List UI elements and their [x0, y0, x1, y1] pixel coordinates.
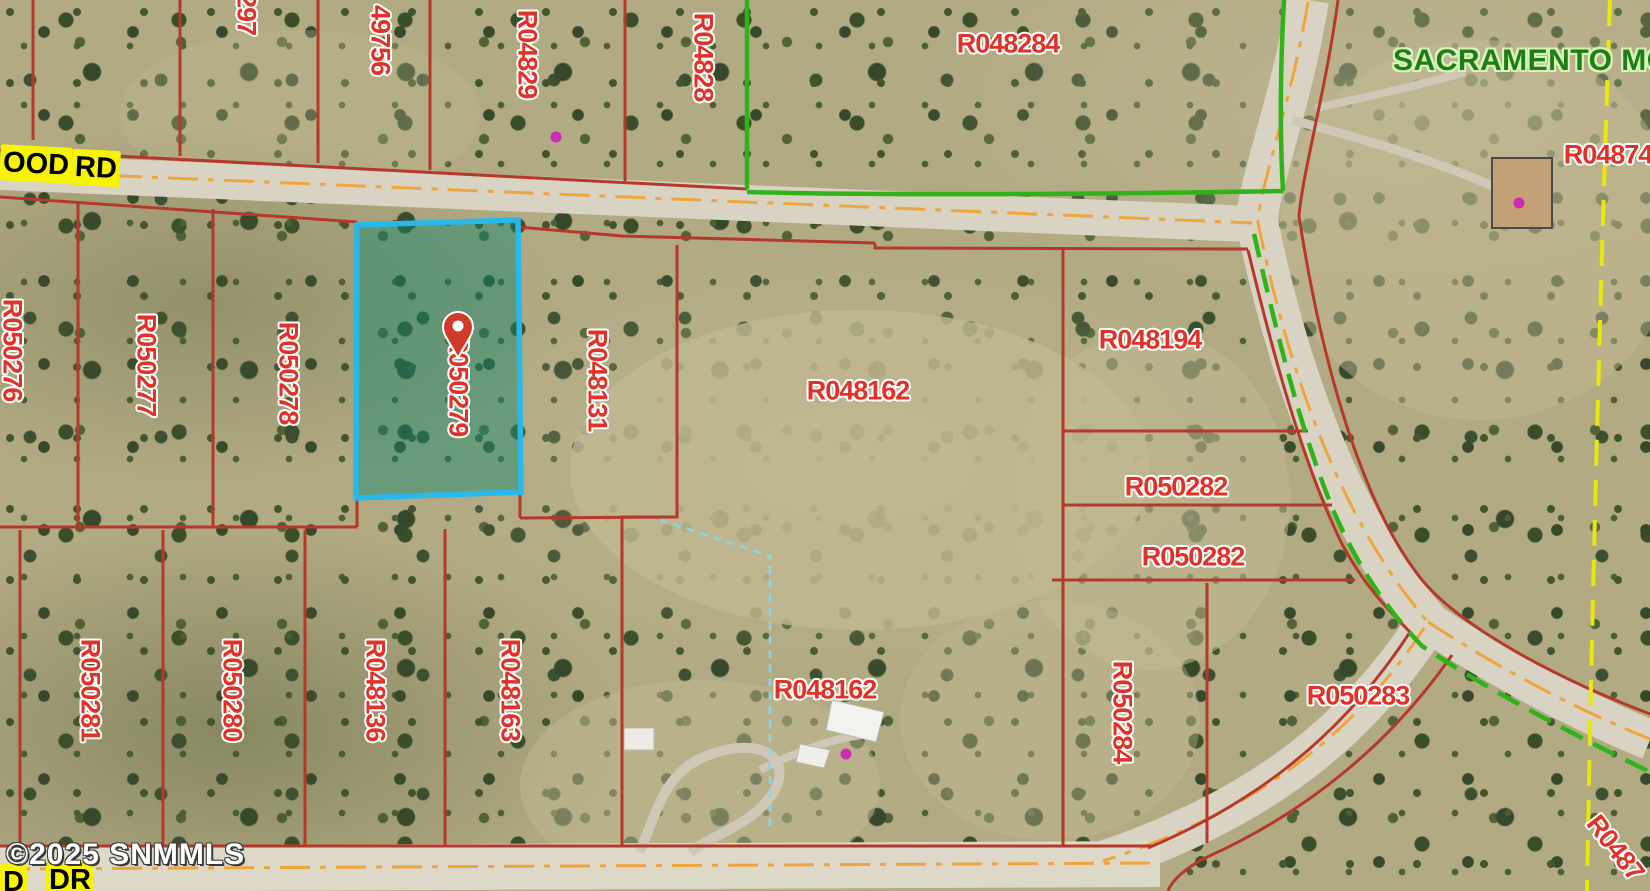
subdivision-label: SACRAMENTO MOU	[1393, 46, 1650, 76]
parcel-label: R050276	[0, 299, 26, 402]
copyright-watermark: ©2025 SNMMLS	[6, 840, 245, 870]
parcel-label: R050282	[1142, 544, 1245, 571]
map-labels: R048284 R04874 R048194 R048162 R050282 R…	[0, 0, 1650, 891]
parcel-label: R050281	[77, 639, 104, 742]
parcel-label: R048162	[807, 378, 910, 405]
parcel-label: 49756	[367, 5, 394, 75]
parcel-label: R04828	[690, 13, 717, 102]
parcel-label: 297	[233, 0, 260, 35]
road-name-label: OOD	[0, 144, 73, 184]
parcel-label: R050282	[1125, 474, 1228, 501]
parcel-label: R048162	[774, 677, 877, 704]
parcel-label: R050277	[133, 314, 160, 417]
parcel-label: R048284	[957, 31, 1060, 58]
road-name-label: RD	[71, 149, 121, 187]
parcel-map-canvas[interactable]: R048284 R04874 R048194 R048162 R050282 R…	[0, 0, 1650, 891]
parcel-label: R050280	[219, 639, 246, 742]
parcel-label: R050283	[1307, 683, 1410, 710]
parcel-label: R04829	[514, 10, 541, 99]
parcel-label: R050278	[275, 322, 302, 425]
parcel-label: R050284	[1109, 661, 1136, 764]
parcel-label: R04874	[1564, 142, 1650, 169]
parcel-label: R048194	[1099, 327, 1202, 354]
parcel-label: R0487	[1581, 810, 1648, 885]
parcel-label: R048131	[584, 329, 611, 432]
parcel-label: R048163	[497, 639, 524, 742]
selected-parcel-label: R050279	[445, 334, 472, 437]
parcel-label: R048136	[362, 639, 389, 742]
